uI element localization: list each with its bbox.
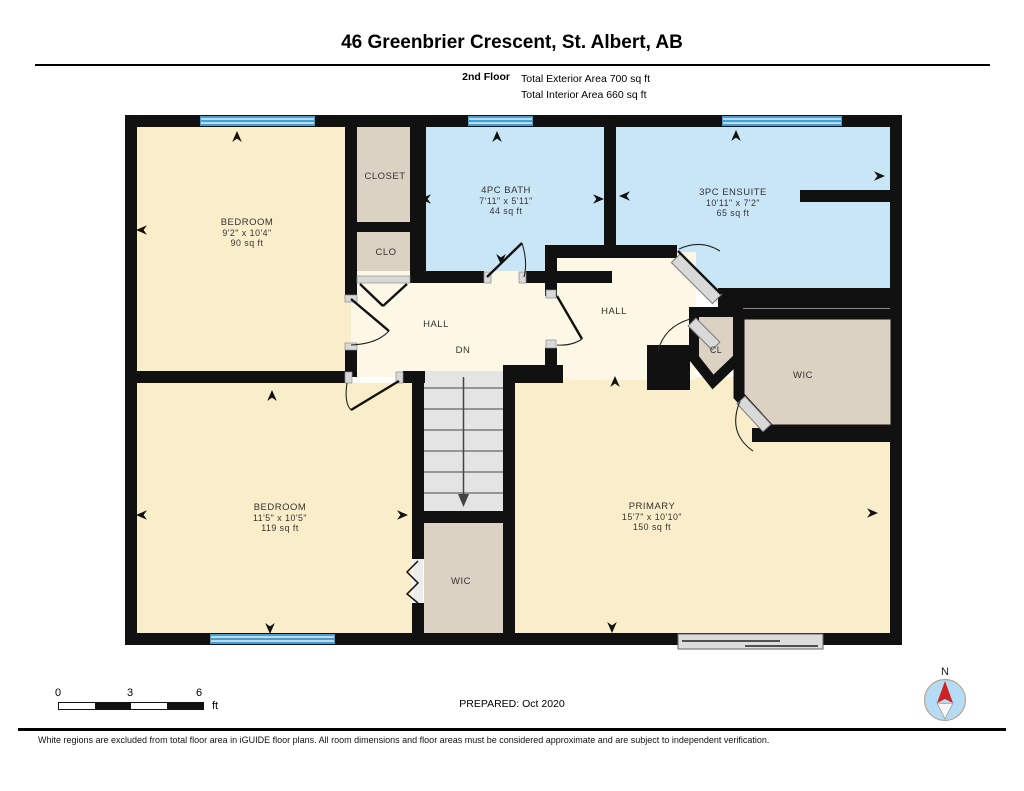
room-bedroom-1 bbox=[131, 121, 351, 377]
disclaimer-text: White regions are excluded from total fl… bbox=[38, 735, 998, 745]
label-bath-dims: 7'11" x 5'11" bbox=[479, 196, 532, 206]
stairs bbox=[424, 371, 503, 511]
label-wic-right: WIC bbox=[793, 370, 813, 381]
label-hall-left: HALL bbox=[423, 319, 449, 330]
footer-divider bbox=[18, 728, 1006, 731]
window-ensuite bbox=[722, 116, 842, 126]
label-clo: CLO bbox=[375, 247, 396, 258]
compass-north-label: N bbox=[941, 666, 949, 678]
window-bedroom1 bbox=[200, 116, 315, 126]
label-ensuite-name: 3PC ENSUITE bbox=[699, 187, 767, 198]
label-wic-bottom: WIC bbox=[451, 576, 471, 587]
floorplan-page: 46 Greenbrier Crescent, St. Albert, AB 2… bbox=[0, 0, 1024, 791]
label-primary-dims: 15'7" x 10'10" bbox=[622, 512, 682, 522]
floorplan-drawing: BEDROOM 9'2" x 10'4" 90 sq ft CLOSET CLO… bbox=[0, 0, 1024, 665]
window-primary-sliding bbox=[678, 634, 823, 649]
label-closet: CLOSET bbox=[364, 171, 405, 182]
label-bedroom2-name: BEDROOM bbox=[254, 502, 307, 513]
label-bedroom2-area: 119 sq ft bbox=[261, 523, 299, 533]
room-wic-right bbox=[739, 314, 896, 430]
compass-icon: N bbox=[915, 662, 975, 724]
window-bedroom2 bbox=[210, 634, 335, 644]
label-primary-name: PRIMARY bbox=[629, 501, 676, 512]
label-bedroom1-name: BEDROOM bbox=[221, 217, 274, 228]
compass: N bbox=[915, 662, 975, 729]
label-bedroom1-area: 90 sq ft bbox=[231, 238, 264, 248]
label-bath-name: 4PC BATH bbox=[481, 185, 531, 196]
label-bedroom1-dims: 9'2" x 10'4" bbox=[222, 228, 271, 238]
window-bath bbox=[468, 116, 533, 126]
floorplan-svg: BEDROOM 9'2" x 10'4" 90 sq ft CLOSET CLO… bbox=[0, 0, 1024, 660]
label-stairs-dn: DN bbox=[456, 345, 471, 356]
label-ensuite-dims: 10'11" x 7'2" bbox=[706, 198, 760, 208]
label-bath-area: 44 sq ft bbox=[490, 206, 523, 216]
label-ensuite-area: 65 sq ft bbox=[717, 208, 750, 218]
prepared-date: PREPARED: Oct 2020 bbox=[0, 698, 1024, 710]
label-cl: CL bbox=[710, 345, 722, 355]
label-bedroom2-dims: 11'5" x 10'5" bbox=[253, 513, 307, 523]
label-primary-area: 150 sq ft bbox=[633, 522, 671, 532]
label-hall-right: HALL bbox=[601, 306, 627, 317]
